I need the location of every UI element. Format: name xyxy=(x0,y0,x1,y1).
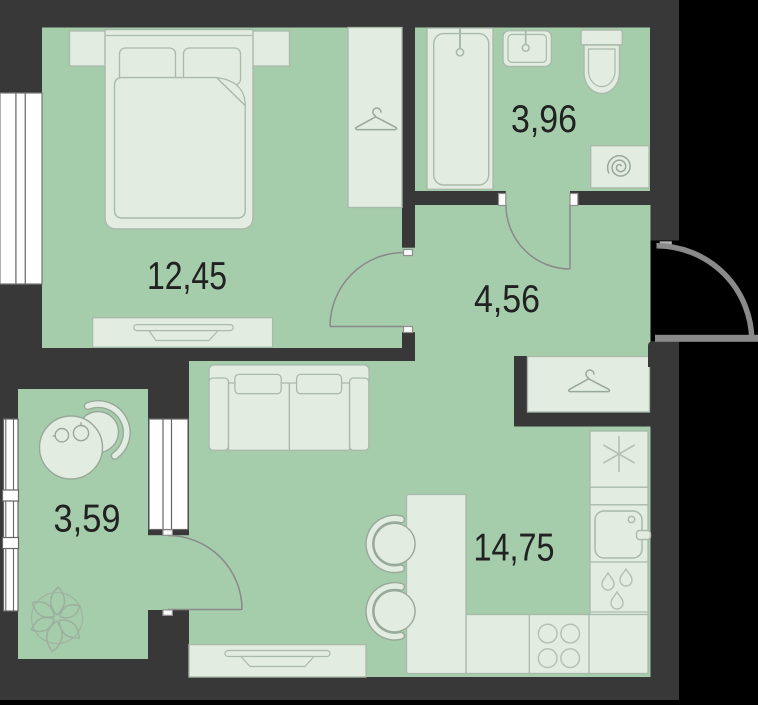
svg-text:3,59: 3,59 xyxy=(54,498,121,541)
svg-text:12,45: 12,45 xyxy=(147,255,227,298)
svg-text:14,75: 14,75 xyxy=(474,527,555,570)
svg-text:4,56: 4,56 xyxy=(474,278,540,321)
svg-text:3,96: 3,96 xyxy=(511,98,577,141)
